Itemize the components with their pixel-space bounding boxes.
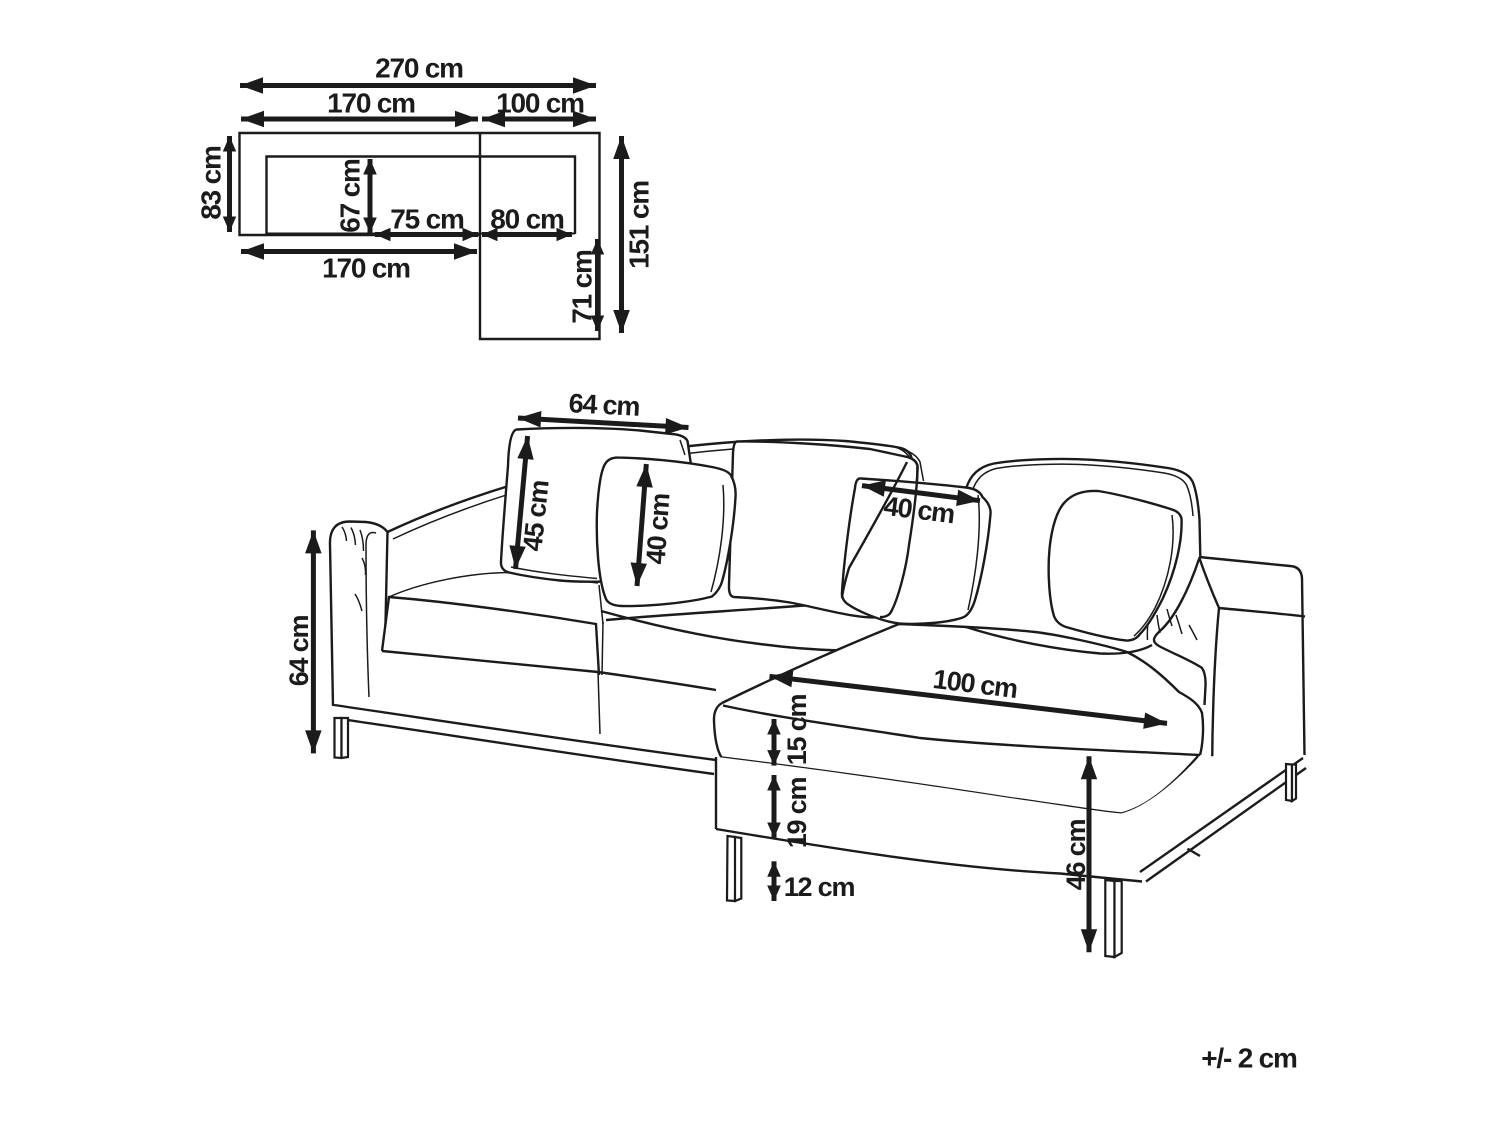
svg-text:46 cm: 46 cm: [1061, 820, 1091, 891]
svg-text:64 cm: 64 cm: [284, 616, 314, 687]
svg-text:75 cm: 75 cm: [390, 204, 464, 235]
svg-text:19 cm: 19 cm: [782, 778, 812, 849]
svg-text:64 cm: 64 cm: [568, 388, 640, 422]
svg-text:170 cm: 170 cm: [327, 88, 415, 119]
svg-text:100 cm: 100 cm: [496, 88, 584, 119]
svg-text:71 cm: 71 cm: [567, 250, 598, 324]
svg-text:170 cm: 170 cm: [322, 253, 410, 284]
svg-text:12 cm: 12 cm: [784, 872, 855, 902]
svg-text:15 cm: 15 cm: [782, 695, 812, 766]
svg-text:+/- 2 cm: +/- 2 cm: [1201, 1043, 1297, 1074]
svg-text:80 cm: 80 cm: [490, 204, 564, 235]
svg-text:40 cm: 40 cm: [641, 493, 676, 566]
svg-text:151 cm: 151 cm: [624, 181, 655, 269]
svg-text:270 cm: 270 cm: [375, 53, 463, 84]
svg-text:67 cm: 67 cm: [335, 159, 366, 233]
svg-text:83 cm: 83 cm: [196, 146, 227, 220]
